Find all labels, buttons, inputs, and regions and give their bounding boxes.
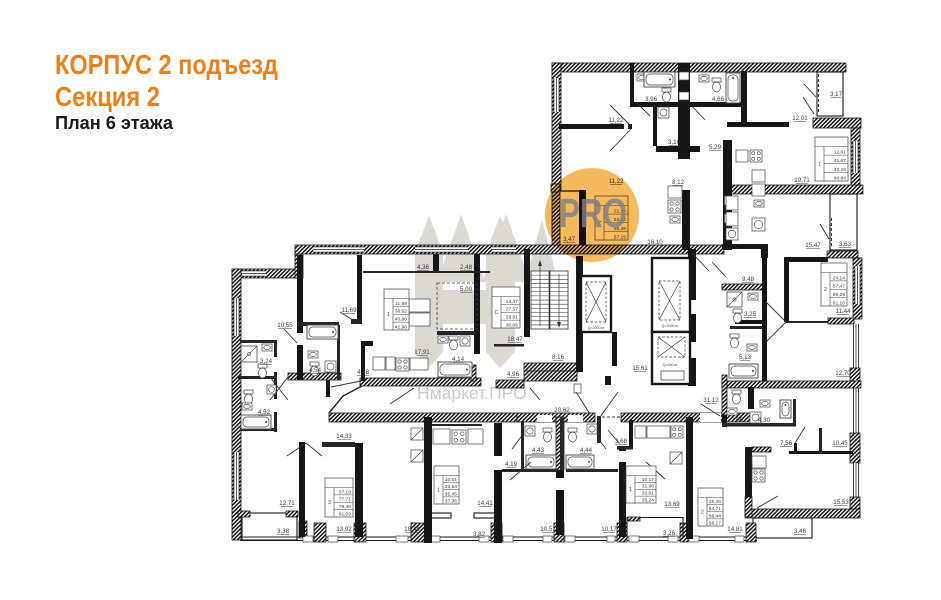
svg-text:37,36: 37,36: [445, 498, 458, 504]
svg-text:3,82: 3,82: [473, 531, 486, 538]
svg-text:14,33: 14,33: [336, 433, 352, 440]
svg-text:Секция 2: Секция 2: [55, 81, 160, 112]
svg-text:7,56: 7,56: [780, 440, 793, 447]
svg-text:18,47: 18,47: [507, 336, 523, 343]
svg-text:5,29: 5,29: [709, 144, 722, 151]
svg-text:3,68: 3,68: [615, 438, 628, 445]
svg-text:11,22: 11,22: [608, 117, 624, 124]
svg-text:3,63: 3,63: [839, 241, 852, 248]
svg-text:17,91: 17,91: [414, 349, 430, 356]
svg-text:30,05: 30,05: [506, 322, 519, 328]
svg-text:1: 1: [818, 162, 821, 168]
svg-text:24,14: 24,14: [833, 275, 846, 281]
svg-text:3,25: 3,25: [744, 311, 757, 318]
svg-text:1: 1: [437, 488, 440, 494]
svg-text:4,36: 4,36: [417, 264, 430, 271]
svg-text:11,69: 11,69: [395, 301, 407, 307]
svg-text:5,13: 5,13: [739, 354, 752, 361]
svg-text:8,12: 8,12: [672, 179, 685, 186]
svg-text:5,00: 5,00: [460, 286, 473, 293]
svg-text:4,52: 4,52: [258, 409, 271, 416]
svg-text:56,44: 56,44: [709, 513, 722, 519]
svg-text:3: 3: [328, 500, 331, 506]
svg-text:13,47: 13,47: [506, 299, 519, 305]
svg-text:3,96: 3,96: [645, 96, 658, 103]
svg-text:4,14: 4,14: [452, 356, 465, 363]
svg-text:10,51: 10,51: [445, 477, 458, 483]
svg-text:1: 1: [629, 487, 632, 493]
svg-text:Q=1000 кг: Q=1000 кг: [588, 326, 605, 330]
svg-text:План 6 этажа: План 6 этажа: [55, 112, 174, 133]
svg-text:58,17: 58,17: [709, 520, 722, 526]
svg-text:57,47: 57,47: [833, 284, 846, 290]
svg-text:12,01: 12,01: [834, 150, 847, 156]
svg-text:20,62: 20,62: [554, 407, 570, 414]
svg-text:11,69: 11,69: [341, 307, 357, 314]
svg-text:12,70: 12,70: [835, 370, 851, 377]
svg-text:Q=630 кг: Q=630 кг: [663, 363, 678, 367]
svg-text:4,54: 4,54: [309, 367, 322, 374]
svg-text:10,55: 10,55: [277, 322, 293, 329]
svg-text:8,16: 8,16: [552, 354, 565, 361]
svg-text:9,48: 9,48: [742, 276, 755, 283]
svg-text:40,80: 40,80: [395, 317, 408, 323]
svg-text:15,47: 15,47: [805, 242, 821, 249]
svg-text:Q=1000 кг: Q=1000 кг: [662, 324, 679, 328]
svg-text:33,54: 33,54: [445, 484, 458, 490]
svg-text:61,10: 61,10: [833, 300, 846, 306]
svg-text:54,71: 54,71: [709, 506, 722, 512]
svg-text:29,91: 29,91: [506, 315, 519, 321]
svg-text:10,51: 10,51: [540, 526, 556, 533]
svg-text:31,12: 31,12: [703, 397, 719, 404]
svg-text:15,61: 15,61: [632, 365, 648, 372]
svg-text:27,57: 27,57: [506, 307, 519, 313]
svg-text:33,61: 33,61: [642, 491, 655, 497]
svg-text:43,26: 43,26: [834, 167, 847, 173]
svg-text:1: 1: [387, 312, 390, 318]
svg-text:16,10: 16,10: [647, 239, 663, 246]
svg-text:14,81: 14,81: [727, 526, 743, 533]
svg-text:19,71: 19,71: [794, 177, 810, 184]
svg-text:3,46: 3,46: [794, 528, 807, 535]
svg-text:4,30: 4,30: [758, 417, 771, 424]
svg-text:12,01: 12,01: [792, 115, 808, 122]
svg-text:С: С: [495, 310, 499, 316]
svg-text:КОРПУС 2 подъезд: КОРПУС 2 подъезд: [55, 49, 278, 80]
svg-text:PRO: PRO: [559, 190, 627, 236]
svg-text:12,71: 12,71: [279, 500, 295, 507]
svg-text:59,29: 59,29: [833, 292, 846, 298]
svg-text:3,17: 3,17: [830, 91, 843, 98]
svg-text:4,43: 4,43: [532, 447, 545, 454]
svg-text:14,41: 14,41: [477, 500, 493, 507]
svg-text:41,67: 41,67: [834, 158, 847, 164]
svg-text:10,17: 10,17: [642, 477, 655, 483]
svg-text:10,45: 10,45: [832, 440, 848, 447]
svg-text:2,48: 2,48: [460, 264, 473, 271]
svg-text:35,45: 35,45: [445, 491, 458, 497]
svg-text:2,06: 2,06: [731, 417, 744, 424]
svg-text:13,92: 13,92: [336, 526, 352, 533]
svg-text:13,69: 13,69: [664, 501, 680, 508]
svg-text:31,98: 31,98: [642, 484, 655, 490]
svg-text:10,17: 10,17: [601, 526, 617, 533]
svg-text:79,40: 79,40: [339, 504, 352, 510]
svg-text:3,26: 3,26: [663, 530, 676, 537]
svg-text:3,38: 3,38: [277, 528, 290, 535]
svg-text:11,44: 11,44: [835, 308, 851, 315]
svg-text:37,18: 37,18: [339, 489, 352, 495]
svg-text:35,24: 35,24: [642, 497, 655, 503]
svg-text:4,96: 4,96: [507, 371, 520, 378]
svg-text:42,98: 42,98: [395, 324, 408, 330]
svg-text:4,66: 4,66: [712, 96, 725, 103]
svg-text:4,19: 4,19: [505, 461, 518, 468]
svg-text:4,48: 4,48: [357, 369, 370, 376]
svg-text:3,10: 3,10: [668, 139, 681, 146]
svg-text:38,62: 38,62: [395, 309, 408, 315]
svg-text:81,09: 81,09: [339, 511, 352, 517]
svg-text:3,24: 3,24: [260, 358, 273, 365]
svg-text:2: 2: [824, 287, 827, 293]
svg-text:15,53: 15,53: [833, 499, 849, 506]
svg-text:77,71: 77,71: [339, 497, 352, 503]
svg-text:25,26: 25,26: [709, 499, 722, 505]
svg-text:44,84: 44,84: [834, 175, 847, 181]
svg-text:2: 2: [701, 510, 704, 516]
svg-text:4,44: 4,44: [580, 447, 593, 454]
svg-text:18,44: 18,44: [404, 526, 420, 533]
